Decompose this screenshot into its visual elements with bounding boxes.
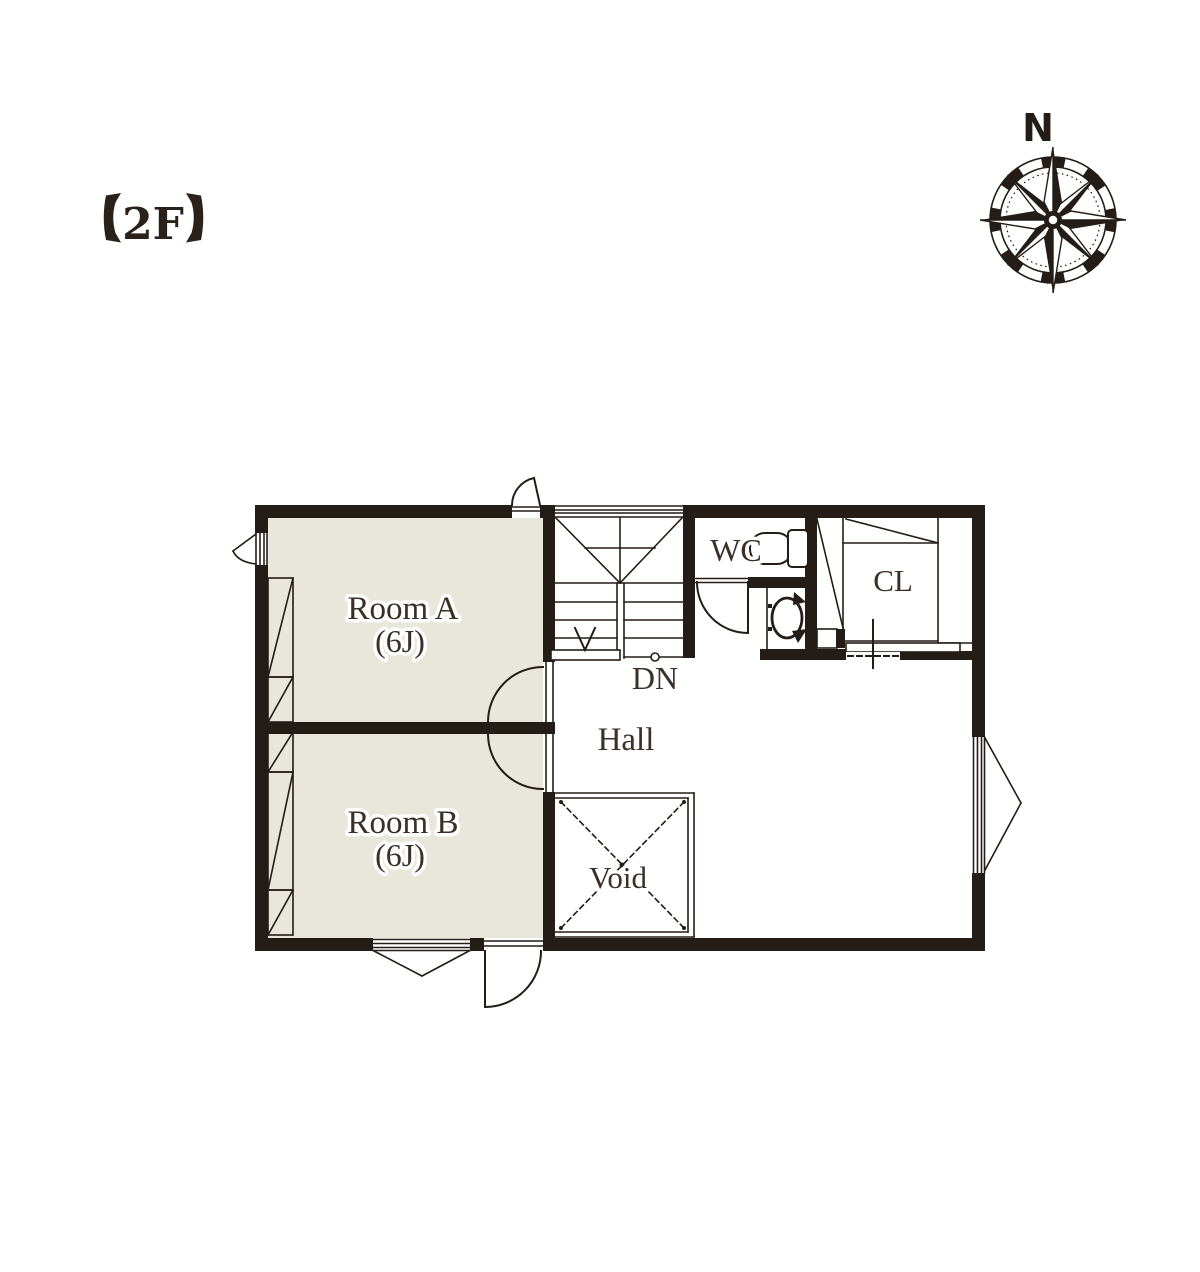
wc-door [695,579,748,634]
room-a-label: Room A [348,591,459,627]
compass: N [980,106,1126,293]
closet-label: CL [873,563,913,598]
compass-north-label: N [1022,106,1054,150]
hanger-pipe-line [846,519,938,543]
hall-window [974,737,1022,873]
hall-label: Hall [598,722,655,758]
compass-rose-icon [980,147,1126,293]
bottom-exterior-door [484,941,543,1007]
room-b-label: Room B [348,805,459,841]
closet-door-leaf [817,519,843,628]
floor-plan-canvas: 2F N [0,0,1200,1272]
sliding-door-panel [846,643,960,652]
room-a-window [233,533,267,565]
room-b-window [373,940,470,977]
close-bracket-glyph [186,193,203,243]
open-bracket-glyph [104,193,121,243]
arrowhead-top-icon [793,592,806,605]
room-a-size: (6J) [375,623,425,659]
stairwell-window [555,506,683,517]
stairs-dn-label: DN [632,660,678,696]
toilet-tank-icon [788,530,808,567]
wc-label: WC [710,532,762,568]
floor-title-text: 2F [122,199,184,250]
void-label: Void [589,860,648,895]
room-b-size: (6J) [375,837,425,873]
staircase [551,518,683,661]
top-exterior-door [512,478,540,511]
floor-title: 2F [104,193,204,250]
floor-plan-page: 2F N [0,0,1200,1272]
down-arrow-icon [575,628,595,650]
